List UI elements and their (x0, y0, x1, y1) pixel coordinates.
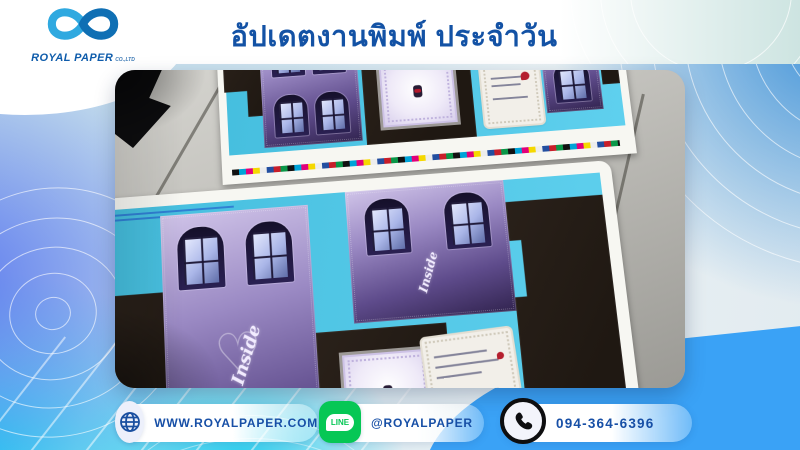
line-label: @ROYALPAPER (371, 416, 473, 430)
website-label: WWW.ROYALPAPER.COM (154, 416, 318, 430)
box-panel (258, 70, 363, 148)
figure-motif (413, 85, 423, 98)
line-icon-text: LINE (326, 414, 354, 431)
brand-suffix: CO.,LTD (115, 57, 135, 63)
page: อัปเดตงานพิมพ์ ประจำวัน ROYAL PAPERCO.,L… (0, 0, 800, 450)
header: อัปเดตงานพิมพ์ ประจำวัน ROYAL PAPERCO.,L… (0, 0, 800, 64)
line-icon: LINE (319, 401, 361, 443)
phone-label: 094-364-6396 (556, 416, 654, 431)
rose-motif (520, 71, 530, 80)
die-cut-flap (504, 178, 636, 388)
box-panel (536, 70, 604, 113)
ornate-label (342, 349, 435, 388)
press-sheets: ♡Inside Inside (115, 70, 685, 388)
infinity-icon (42, 3, 124, 45)
royal-paper-logo: ROYAL PAPERCO.,LTD (24, 3, 142, 65)
rose-motif (496, 351, 504, 359)
figure-motif (383, 385, 393, 388)
website-button[interactable]: WWW.ROYALPAPER.COM (116, 404, 318, 442)
printed-area (223, 70, 625, 156)
line-button[interactable]: LINE @ROYALPAPER (320, 404, 484, 442)
die-cut-flap (360, 70, 477, 145)
invitation-card (477, 70, 545, 127)
box-panel: ♡Inside (160, 205, 327, 388)
phone-icon (500, 398, 546, 444)
globe-icon (115, 401, 144, 443)
invitation-card (421, 328, 534, 388)
brand-name: ROYAL PAPER (31, 52, 113, 64)
print-job-photo: ♡Inside Inside (115, 70, 685, 388)
printed-area: ♡Inside Inside (115, 173, 638, 388)
box-panel: Inside (345, 180, 517, 324)
ornate-label (378, 70, 458, 128)
press-sheet-lower: ♡Inside Inside (115, 160, 652, 388)
inside-script-label: Inside (416, 250, 441, 294)
phone-button[interactable]: 094-364-6396 (502, 404, 692, 442)
